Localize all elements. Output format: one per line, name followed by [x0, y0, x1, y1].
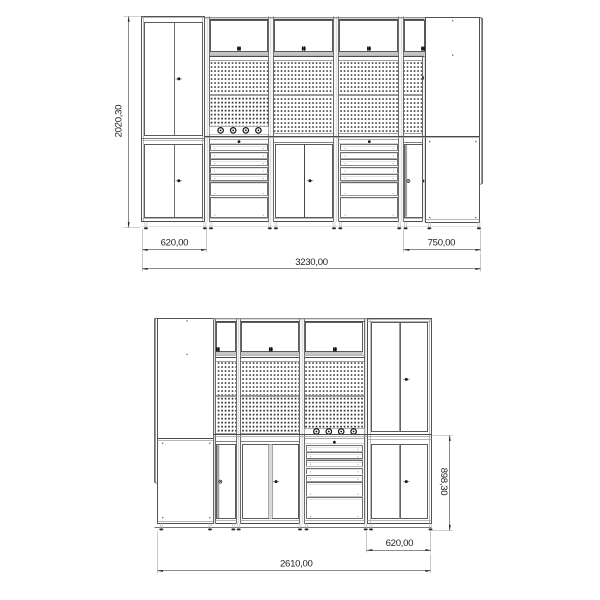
svg-text:620,00: 620,00 — [386, 538, 414, 549]
svg-text:620,00: 620,00 — [161, 238, 189, 249]
svg-text:898,30: 898,30 — [438, 468, 449, 496]
svg-text:2610,00: 2610,00 — [280, 558, 313, 569]
svg-text:3230,00: 3230,00 — [295, 257, 328, 268]
svg-text:750,00: 750,00 — [428, 238, 456, 249]
svg-text:2020,30: 2020,30 — [114, 105, 125, 138]
